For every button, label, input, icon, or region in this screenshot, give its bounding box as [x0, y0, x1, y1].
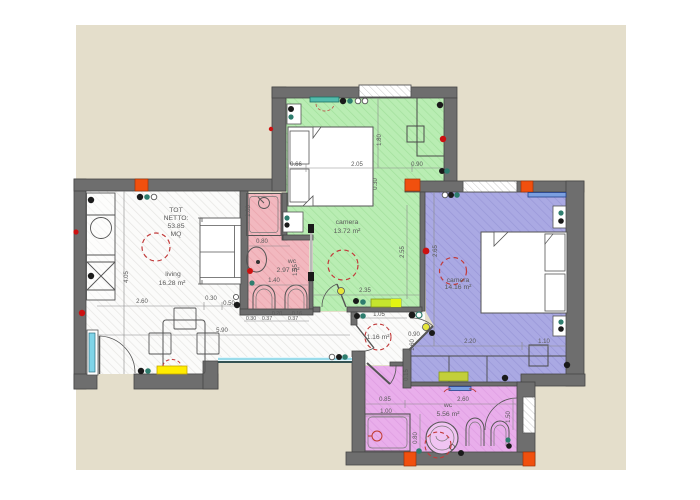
svg-text:0.37: 0.37: [288, 316, 298, 322]
svg-text:0.90: 0.90: [408, 332, 420, 338]
svg-text:2.60: 2.60: [136, 299, 148, 305]
svg-text:MQ: MQ: [171, 231, 182, 238]
svg-text:1.80: 1.80: [377, 134, 383, 146]
svg-text:wc: wc: [287, 258, 297, 265]
svg-text:0.50: 0.50: [223, 301, 235, 307]
svg-text:1.16 m²: 1.16 m²: [366, 334, 390, 341]
svg-text:0.37: 0.37: [262, 316, 272, 322]
svg-text:16.28 m²: 16.28 m²: [159, 280, 187, 287]
svg-text:1.60: 1.60: [410, 339, 416, 351]
svg-text:0.30: 0.30: [246, 316, 256, 322]
svg-text:1.05: 1.05: [373, 312, 385, 318]
svg-text:living: living: [165, 271, 181, 278]
svg-text:2.65: 2.65: [433, 245, 439, 257]
svg-text:2.60: 2.60: [457, 397, 469, 403]
svg-text:2.35: 2.35: [359, 288, 371, 294]
svg-text:0.80: 0.80: [256, 239, 268, 245]
svg-text:53.85: 53.85: [167, 223, 184, 230]
svg-text:2.20: 2.20: [464, 339, 476, 345]
svg-text:4.05: 4.05: [124, 271, 130, 283]
svg-text:0.85: 0.85: [379, 397, 391, 403]
svg-text:13.72 m²: 13.72 m²: [334, 228, 362, 235]
svg-text:1.00: 1.00: [246, 205, 252, 217]
svg-text:wc: wc: [443, 402, 453, 409]
svg-text:TOT: TOT: [169, 207, 182, 214]
svg-text:0.20: 0.20: [272, 311, 282, 317]
svg-text:1.00: 1.00: [380, 409, 392, 415]
svg-text:0.66: 0.66: [290, 162, 302, 168]
svg-text:0.30: 0.30: [373, 178, 379, 190]
svg-text:camera: camera: [336, 219, 359, 226]
svg-text:0.15: 0.15: [404, 369, 410, 381]
svg-text:1.55: 1.55: [293, 264, 299, 276]
svg-text:0.90: 0.90: [411, 162, 423, 168]
svg-text:2.05: 2.05: [351, 162, 363, 168]
svg-text:0.30: 0.30: [205, 296, 217, 302]
svg-text:1.40: 1.40: [268, 278, 280, 284]
svg-text:1.10: 1.10: [538, 339, 550, 345]
svg-text:14.16 m²: 14.16 m²: [445, 284, 473, 291]
svg-text:camera: camera: [447, 277, 470, 284]
svg-text:1.50: 1.50: [506, 411, 512, 423]
svg-text:5.90: 5.90: [216, 328, 228, 334]
svg-text:0.80: 0.80: [413, 432, 419, 444]
svg-text:NETTO:: NETTO:: [164, 215, 189, 222]
svg-text:5.56 m²: 5.56 m²: [436, 411, 460, 418]
svg-text:2.55: 2.55: [400, 246, 406, 258]
